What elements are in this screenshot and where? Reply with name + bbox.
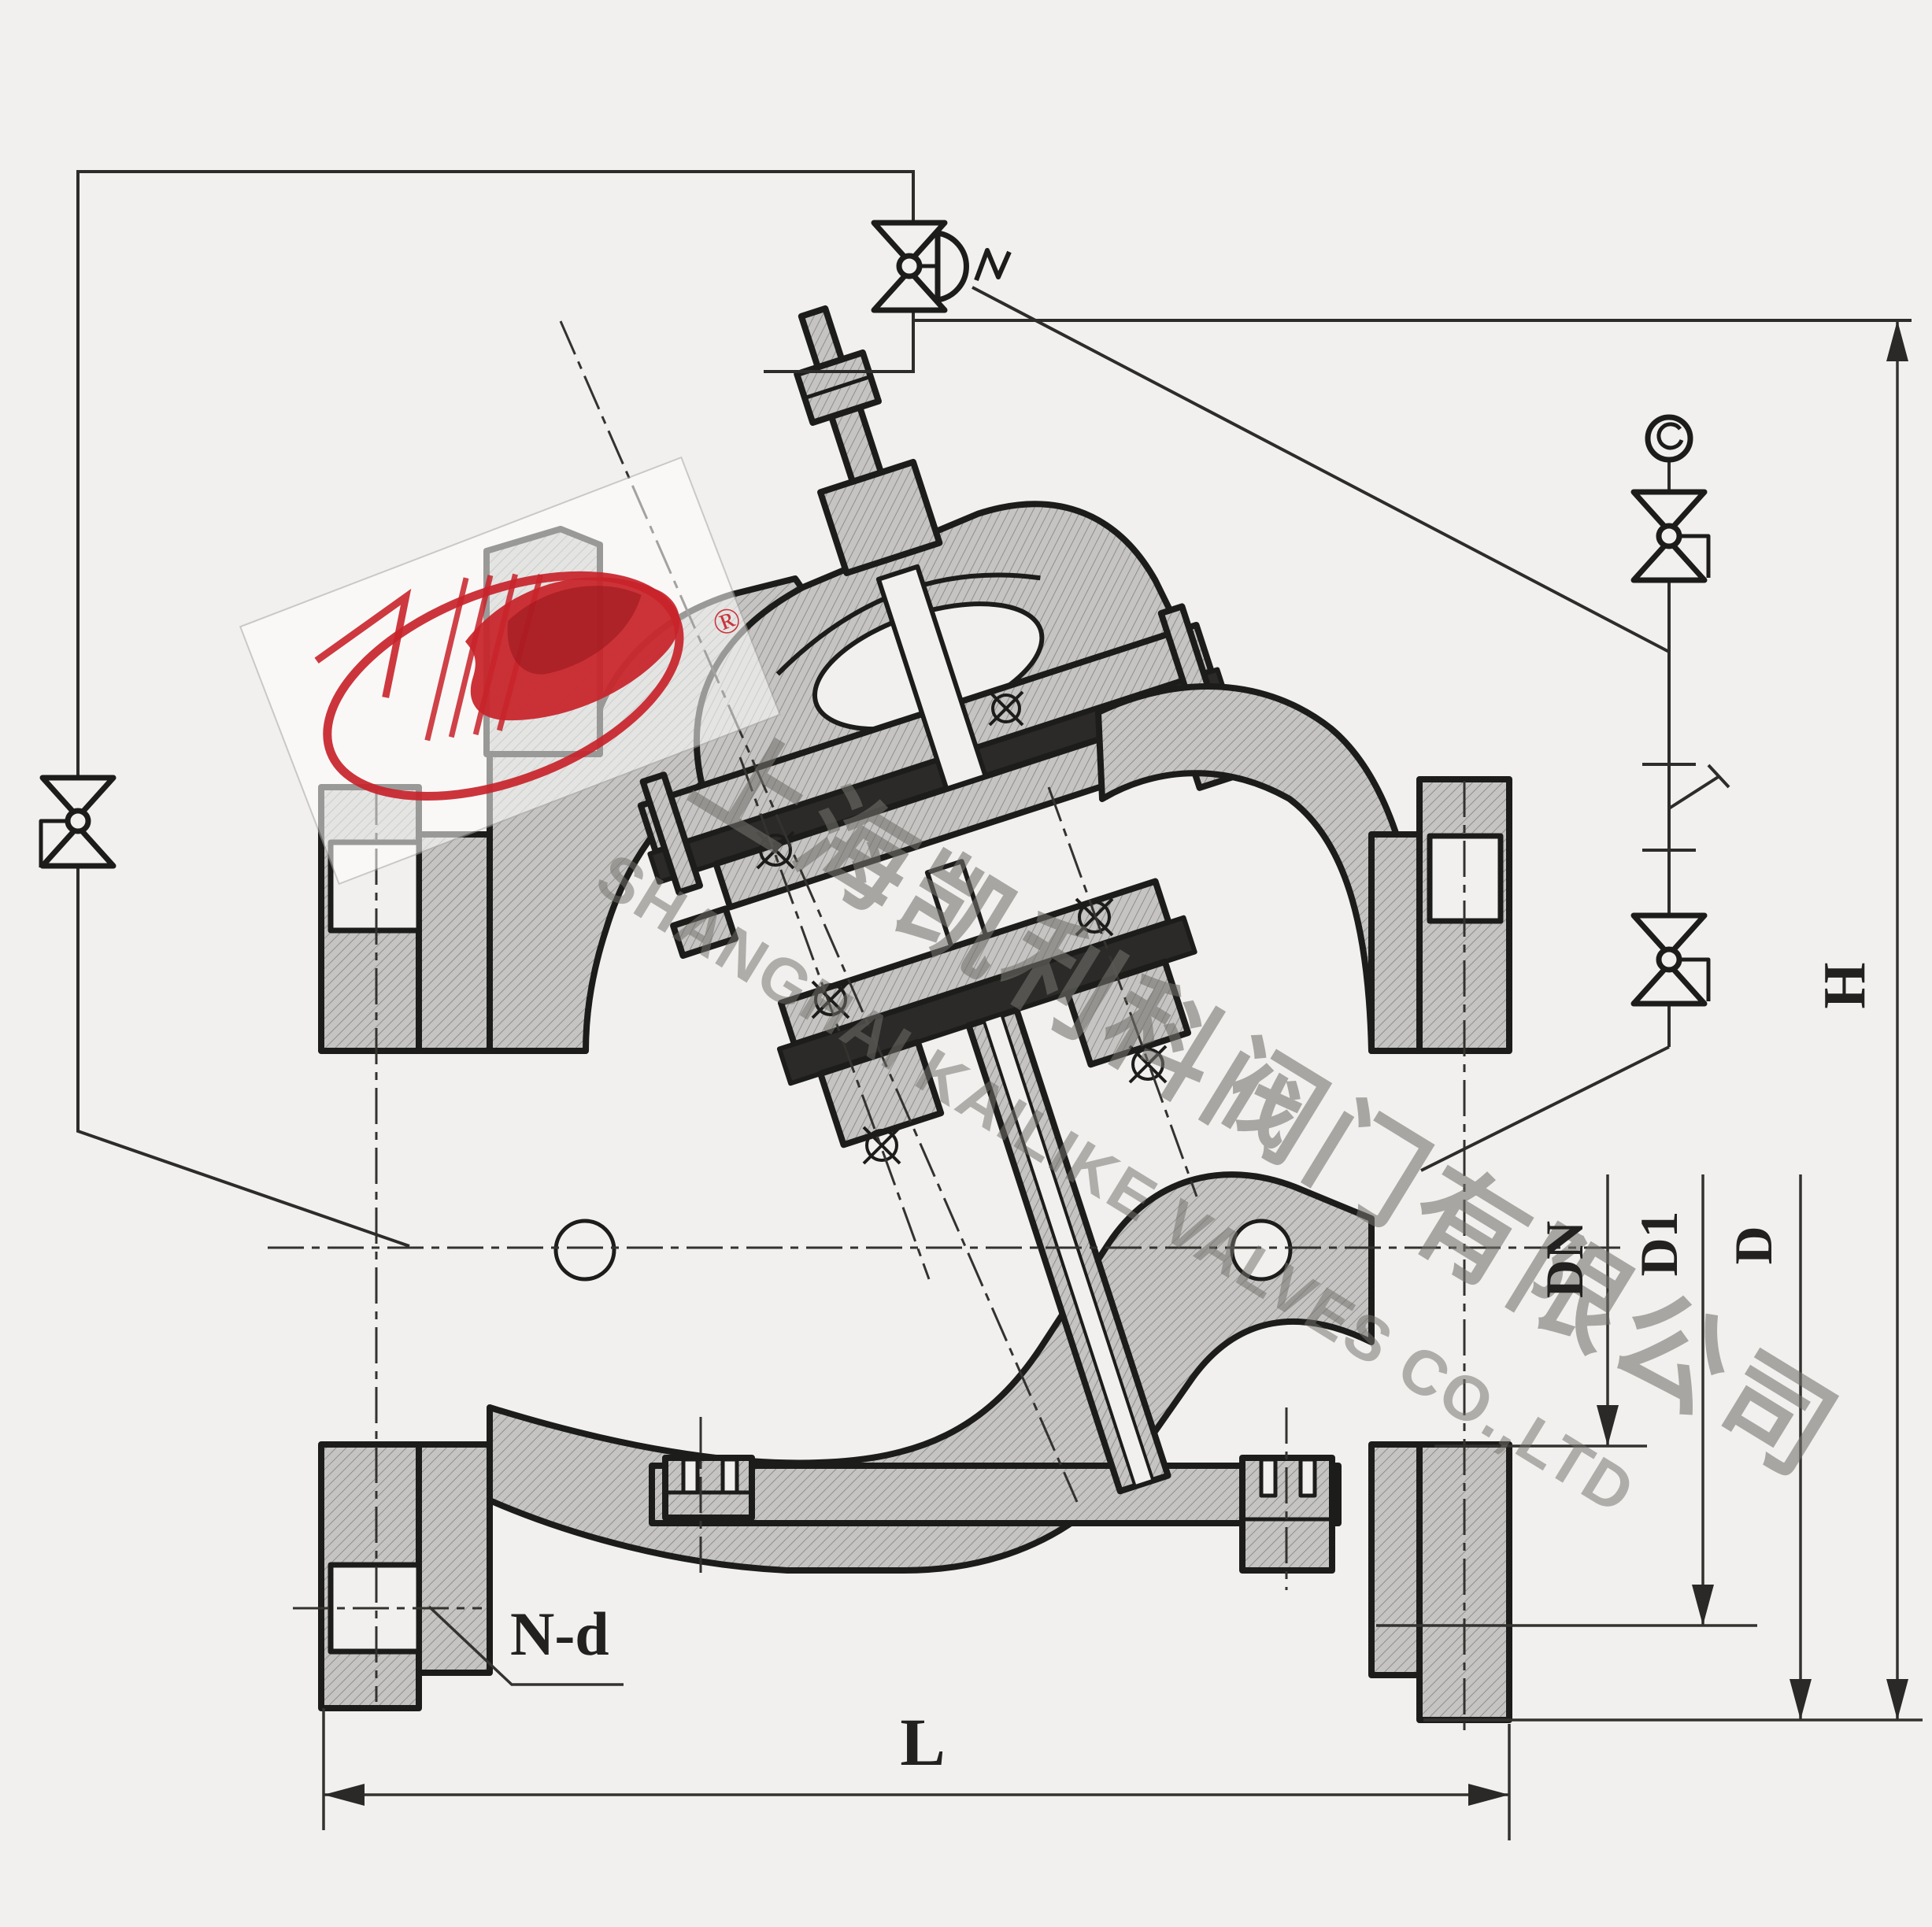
- label-L: L: [900, 1704, 945, 1780]
- needle-valve-icon-left: [41, 778, 113, 867]
- valve-technical-drawing: ® 上海凯利科阀门有限公司 SHANGHAI KAILIKE VALVES CO…: [0, 0, 1932, 1927]
- adjusting-stud: [831, 407, 881, 481]
- label-D: D: [1723, 1226, 1783, 1264]
- valve-body-section: [321, 227, 1509, 1720]
- spring-squiggle-icon: [976, 250, 1009, 280]
- drawing-sheet: ® 上海凯利科阀门有限公司 SHANGHAI KAILIKE VALVES CO…: [0, 0, 1932, 1927]
- needle-valve-icon-right-upper: [1634, 492, 1708, 580]
- inlet-center-mark: [556, 1221, 614, 1279]
- diaphragm-actuator-icon: [938, 233, 966, 300]
- label-D1: D1: [1629, 1211, 1689, 1276]
- label-DN: DN: [1534, 1221, 1594, 1298]
- needle-valve-icon-right-lower: [1634, 915, 1708, 1004]
- pressure-gauge-icon: [1648, 417, 1690, 460]
- label-H: H: [1812, 962, 1878, 1008]
- strainer-tap-icon: [1669, 776, 1719, 808]
- label-N-d: N-d: [510, 1600, 609, 1668]
